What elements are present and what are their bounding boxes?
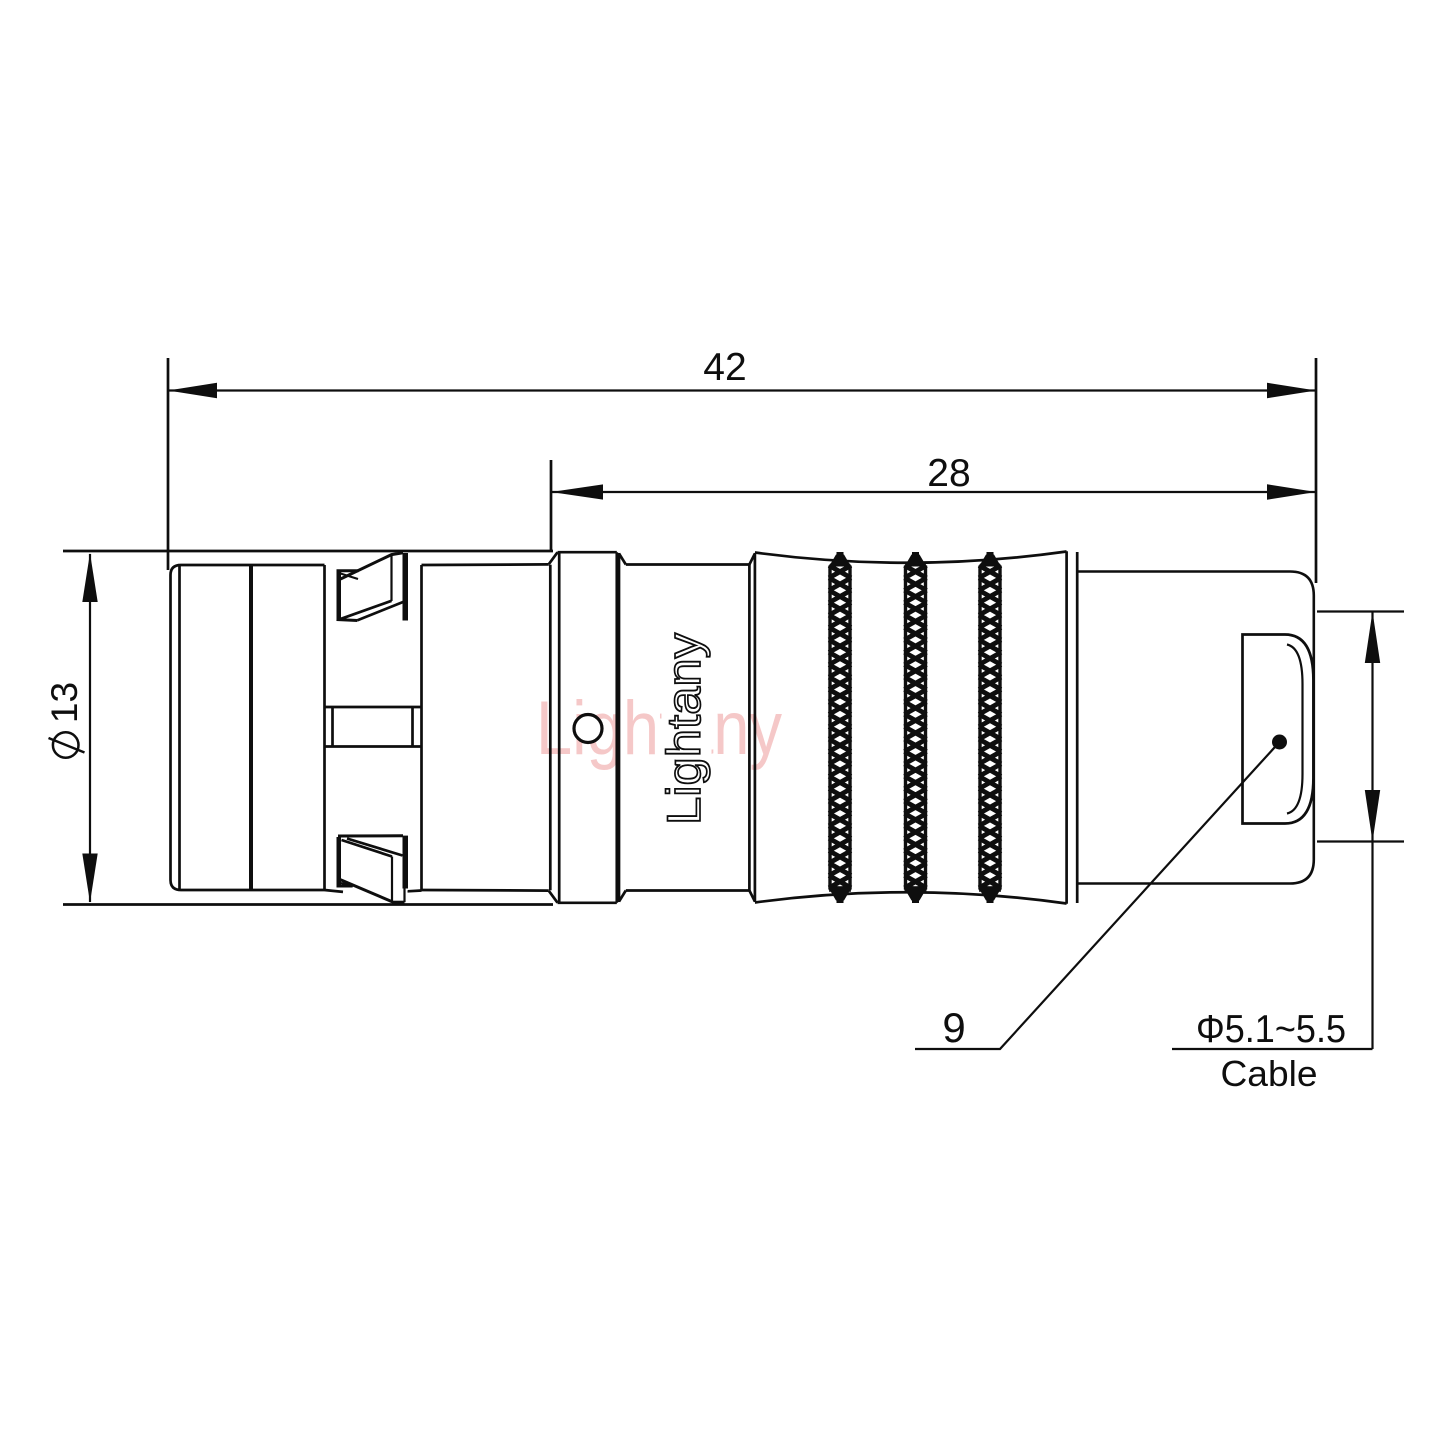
svg-text:28: 28 [927, 452, 970, 495]
svg-text:13: 13 [44, 682, 85, 723]
svg-text:Φ5.1~5.5: Φ5.1~5.5 [1196, 1008, 1346, 1051]
svg-text:9: 9 [942, 1004, 965, 1051]
svg-text:Lightany: Lightany [657, 632, 710, 825]
svg-text:Cable: Cable [1221, 1053, 1318, 1094]
svg-text:42: 42 [703, 346, 746, 389]
